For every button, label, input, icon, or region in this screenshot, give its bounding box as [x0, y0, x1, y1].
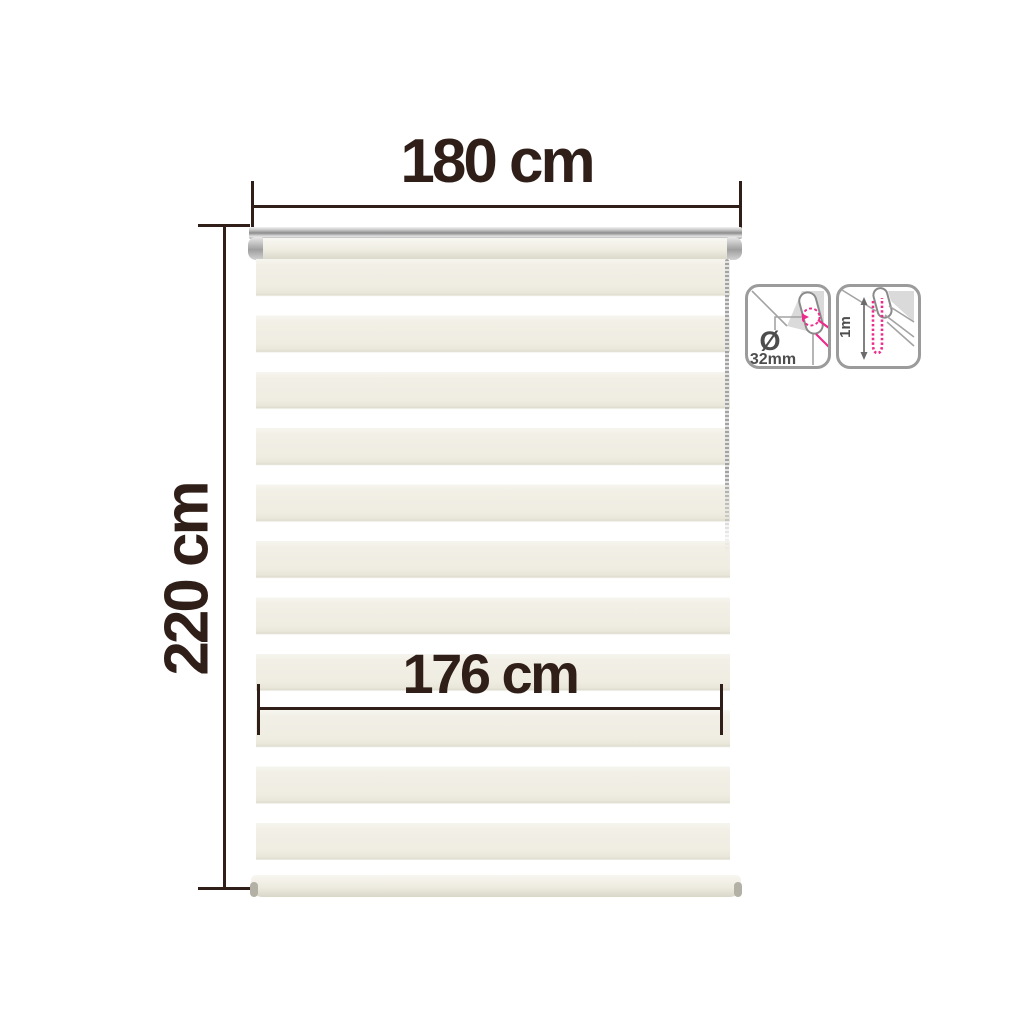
length-arrow-up	[861, 297, 868, 305]
blind-bottom-bar	[251, 875, 741, 897]
bottom-bar-cap-left	[250, 882, 258, 897]
control-chain	[725, 259, 729, 552]
blind-edge-highlight-bottom	[816, 334, 829, 347]
fabric-width-dimension-label: 176 cm	[257, 641, 723, 706]
height-dimension-line	[223, 224, 226, 890]
chain-length-graphic: 1m	[836, 284, 921, 369]
bottom-bar-cap-right	[734, 882, 742, 897]
wall-corner-line	[752, 291, 787, 326]
fabric-width-tick-left	[257, 684, 260, 735]
height-dimension-tick-bottom	[198, 887, 250, 890]
width-dimension-tick-left	[251, 181, 254, 232]
width-dimension-tick-right	[739, 181, 742, 232]
wall-corner-line	[842, 290, 876, 311]
length-arrow-down	[861, 352, 868, 360]
product-dimension-diagram: 180 cm 220 cm 176 cm Ø 32mm	[0, 0, 1024, 1024]
tube-diameter-graphic: Ø 32mm	[745, 284, 831, 369]
fabric-width-dimension-line	[257, 707, 723, 710]
tube-diameter-icon: Ø 32mm	[745, 284, 831, 369]
height-dimension-label: 220 cm	[152, 430, 223, 730]
chain-length-icon: 1m	[836, 284, 921, 369]
width-dimension-label: 180 cm	[247, 126, 746, 197]
roller-end-cap-left	[248, 237, 263, 260]
blind-roller-tube	[250, 238, 741, 259]
fabric-width-tick-right	[720, 684, 723, 735]
height-dimension-tick-top	[198, 224, 250, 227]
ceiling-shading	[888, 291, 914, 322]
width-dimension-line	[251, 205, 742, 208]
diameter-value: 32mm	[750, 351, 796, 368]
blind-zebra-fabric	[256, 259, 730, 860]
chain-length-value: 1m	[837, 316, 854, 338]
roller-end-cap-right	[727, 237, 742, 260]
